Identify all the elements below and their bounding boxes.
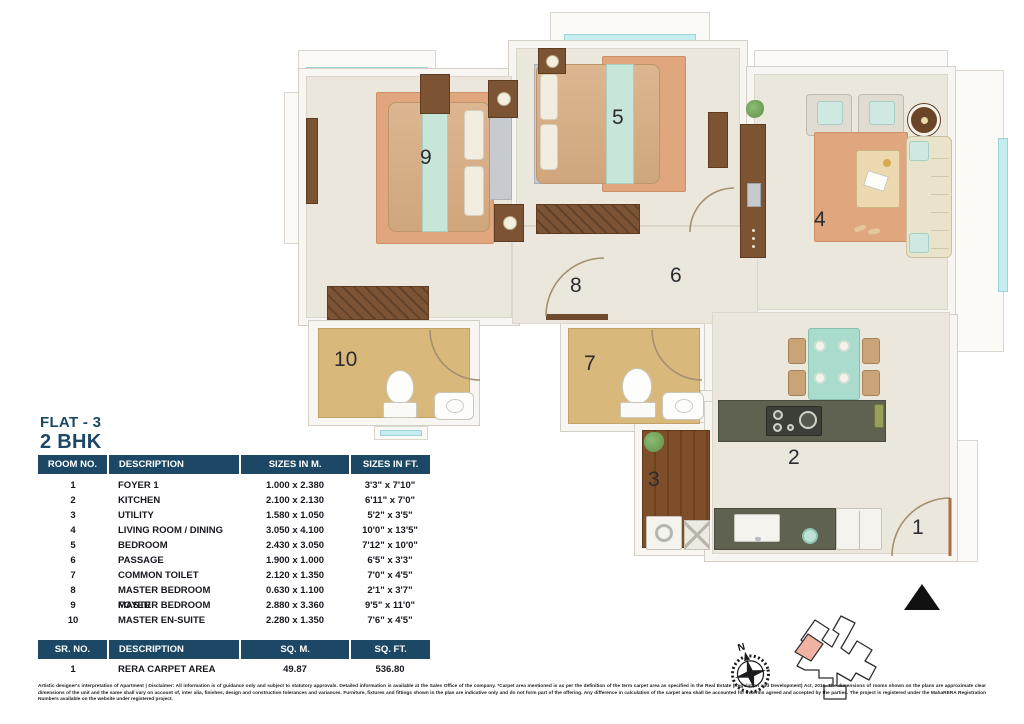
table-cell: 10'0" x 13'5" [350, 523, 430, 538]
table-row: 10MASTER EN-SUITE2.280 x 1.3507'6" x 4'5… [38, 613, 430, 628]
armchair-cushion [817, 101, 843, 125]
table-cell: 0.630 x 1.100 [240, 583, 350, 598]
table-row: 3UTILITY1.580 x 1.0505'2" x 3'5" [38, 508, 430, 523]
table-cell: 2.280 x 1.350 [240, 613, 350, 628]
disclaimer-text: Artistic designer's interpretation of Ap… [38, 684, 986, 704]
table-cell: 1.900 x 1.000 [240, 553, 350, 568]
room-label-common-toilet: 7 [584, 352, 596, 376]
table-row: 7COMMON TOILET2.120 x 1.3507'0" x 4'5" [38, 568, 430, 583]
ledge-right [952, 70, 1004, 352]
book-icon [863, 170, 889, 192]
pillow [540, 74, 558, 120]
table-cell: 2.430 x 3.050 [240, 538, 350, 553]
decor-icon [921, 117, 928, 124]
knob-icon [752, 237, 755, 240]
dining-chair [788, 338, 806, 364]
lamp-icon [546, 55, 559, 68]
table-cell: MASTER BEDROOM [108, 598, 240, 613]
table-cell: KITCHEN [108, 493, 240, 508]
col-sizes-ft: SIZES IN FT. [349, 455, 430, 474]
table-cell: MASTER BEDROOM FOYER [108, 583, 240, 598]
bhk-title: 2 BHK [40, 431, 102, 454]
sofa [906, 136, 952, 258]
sink [734, 514, 780, 542]
col-sizes-m: SIZES IN M. [239, 455, 349, 474]
table-cell: COMMON TOILET [108, 568, 240, 583]
fridge [836, 508, 882, 550]
table-cell: 536.80 [350, 662, 430, 677]
room-label-passage: 6 [670, 264, 682, 288]
plate-icon [814, 340, 826, 352]
pillow [464, 166, 484, 216]
room-label-master-ensuite: 10 [334, 348, 357, 372]
tv-icon [747, 183, 761, 207]
lamp-icon [503, 216, 517, 230]
table-cell: 7'6" x 4'5" [350, 613, 430, 628]
room-label-master-foyer: 8 [570, 274, 582, 298]
table-cell: 2.880 x 3.360 [240, 598, 350, 613]
table-row: 5BEDROOM2.430 x 3.0507'12" x 10'0" [38, 538, 430, 553]
basin-bowl-icon [446, 399, 464, 413]
tv-unit [740, 124, 766, 258]
table-cell: 6 [38, 553, 108, 568]
table-cell: 3.050 x 4.100 [240, 523, 350, 538]
toilet-tank [383, 402, 417, 418]
wardrobe-side [708, 112, 728, 168]
window-living-side [998, 138, 1008, 292]
table-cell: 9 [38, 598, 108, 613]
dining-chair [788, 370, 806, 396]
table-cell: 1 [38, 662, 108, 677]
nightstand [538, 48, 566, 74]
burner-icon [773, 423, 782, 432]
armchair [858, 94, 904, 136]
table-cell: 2'1" x 3'7" [350, 583, 430, 598]
sofa-seats [931, 141, 949, 253]
col-description: DESCRIPTION [107, 455, 239, 474]
table-cell: 3 [38, 508, 108, 523]
table-cell: 7 [38, 568, 108, 583]
room-label-kitchen: 2 [788, 446, 800, 470]
table-cell: 10 [38, 613, 108, 628]
plate-icon [802, 528, 818, 544]
pillow [540, 124, 558, 170]
room-label-living: 4 [814, 208, 826, 232]
compass-north-label: N [737, 642, 747, 654]
lamp-icon [497, 92, 511, 106]
dining-table [808, 328, 860, 400]
room-label-master-bedroom: 9 [420, 146, 432, 170]
burner-icon [787, 424, 794, 431]
wardrobe [536, 204, 640, 234]
knob-icon [752, 245, 755, 248]
table-row: 1FOYER 11.000 x 2.3803'3" x 7'10" [38, 478, 430, 493]
fridge-divider [859, 511, 860, 549]
table-cell: 9'5" x 11'0" [350, 598, 430, 613]
pillow [464, 110, 484, 160]
table-cell: 2 [38, 493, 108, 508]
plate-icon [838, 340, 850, 352]
col-description: DESCRIPTION [107, 640, 239, 659]
coffee-table [856, 150, 900, 208]
table-cell: LIVING ROOM / DINING [108, 523, 240, 538]
table-cell: RERA CARPET AREA [108, 662, 240, 677]
nightstand [488, 80, 518, 118]
table-cell: 6'5" x 3'3" [350, 553, 430, 568]
faucet-icon [755, 537, 761, 541]
sofa-cushion [909, 233, 929, 253]
toilet [622, 368, 652, 404]
room-size-table: ROOM NO. DESCRIPTION SIZES IN M. SIZES I… [38, 455, 430, 628]
table-cell: 7'12" x 10'0" [350, 538, 430, 553]
area-table-body: 1RERA CARPET AREA49.87536.80 [38, 659, 430, 677]
col-room-no: ROOM NO. [38, 455, 107, 474]
toilet-tank [620, 402, 656, 418]
table-cell: 4 [38, 523, 108, 538]
room-table-body: 1FOYER 11.000 x 2.3803'3" x 7'10"2KITCHE… [38, 474, 430, 628]
table-row: 4LIVING ROOM / DINING3.050 x 4.10010'0" … [38, 523, 430, 538]
wardrobe [327, 286, 429, 320]
plate-icon [838, 372, 850, 384]
armchair [806, 94, 852, 136]
dining-chair [862, 370, 880, 396]
basin-bowl-icon [675, 399, 693, 413]
washer-door-icon [655, 524, 673, 542]
knob-icon [752, 229, 755, 232]
table-row: 8MASTER BEDROOM FOYER0.630 x 1.1002'1" x… [38, 583, 430, 598]
toilet [386, 370, 414, 404]
wardrobe-top [420, 74, 450, 114]
side-table [908, 104, 940, 136]
flat-title: FLAT - 3 [40, 414, 101, 431]
hob-icon [766, 406, 822, 436]
burner-icon [799, 411, 817, 429]
armchair-cushion [869, 101, 895, 125]
col-sq-ft: SQ. FT. [349, 640, 430, 659]
washing-machine [646, 516, 682, 550]
table-cell: 3'3" x 7'10" [350, 478, 430, 493]
table-row: 2KITCHEN2.100 x 2.1306'11" x 7'0" [38, 493, 430, 508]
dresser [306, 118, 318, 204]
table-cell: 5'2" x 3'5" [350, 508, 430, 523]
table-cell: 7'0" x 4'5" [350, 568, 430, 583]
table-cell: 49.87 [240, 662, 350, 677]
window-ensuite [380, 430, 422, 436]
table-cell: 1.000 x 2.380 [240, 478, 350, 493]
room-table-header: ROOM NO. DESCRIPTION SIZES IN M. SIZES I… [38, 455, 430, 474]
table-cell: 1 [38, 478, 108, 493]
table-cell: 2.120 x 1.350 [240, 568, 350, 583]
area-table-header: SR. NO. DESCRIPTION SQ. M. SQ. FT. [38, 640, 430, 659]
table-cell: PASSAGE [108, 553, 240, 568]
entry-arrow-icon [904, 584, 940, 610]
washbasin [662, 392, 704, 420]
nightstand [494, 204, 524, 242]
plate-icon [814, 372, 826, 384]
floor-plan-page: 1 2 3 4 5 6 7 8 9 10 N FLAT - 3 2 BHK RO… [0, 0, 1024, 724]
table-cell: 2.100 x 2.130 [240, 493, 350, 508]
col-sr-no: SR. NO. [38, 640, 107, 659]
table-row: 9MASTER BEDROOM2.880 x 3.3609'5" x 11'0" [38, 598, 430, 613]
washbasin [434, 392, 474, 420]
table-cell: BEDROOM [108, 538, 240, 553]
floor-passage [512, 226, 758, 324]
decor-icon [883, 159, 891, 167]
table-cell: 5 [38, 538, 108, 553]
table-row: 6PASSAGE1.900 x 1.0006'5" x 3'3" [38, 553, 430, 568]
col-sq-m: SQ. M. [239, 640, 349, 659]
table-cell: 8 [38, 583, 108, 598]
sofa-cushion [909, 141, 929, 161]
table-cell: 1.580 x 1.050 [240, 508, 350, 523]
room-label-foyer: 1 [912, 516, 924, 540]
jar-icon [874, 404, 884, 428]
floor-drain-tile [684, 520, 710, 550]
table-cell: MASTER EN-SUITE [108, 613, 240, 628]
room-label-utility: 3 [648, 468, 660, 492]
table-cell: FOYER 1 [108, 478, 240, 493]
table-cell: UTILITY [108, 508, 240, 523]
table-cell: 6'11" x 7'0" [350, 493, 430, 508]
burner-icon [773, 410, 783, 420]
table-row: 1RERA CARPET AREA49.87536.80 [38, 662, 430, 677]
dining-chair [862, 338, 880, 364]
room-label-bedroom: 5 [612, 106, 624, 130]
carpet-area-table: SR. NO. DESCRIPTION SQ. M. SQ. FT. 1RERA… [38, 640, 430, 677]
door-sill [546, 314, 608, 320]
